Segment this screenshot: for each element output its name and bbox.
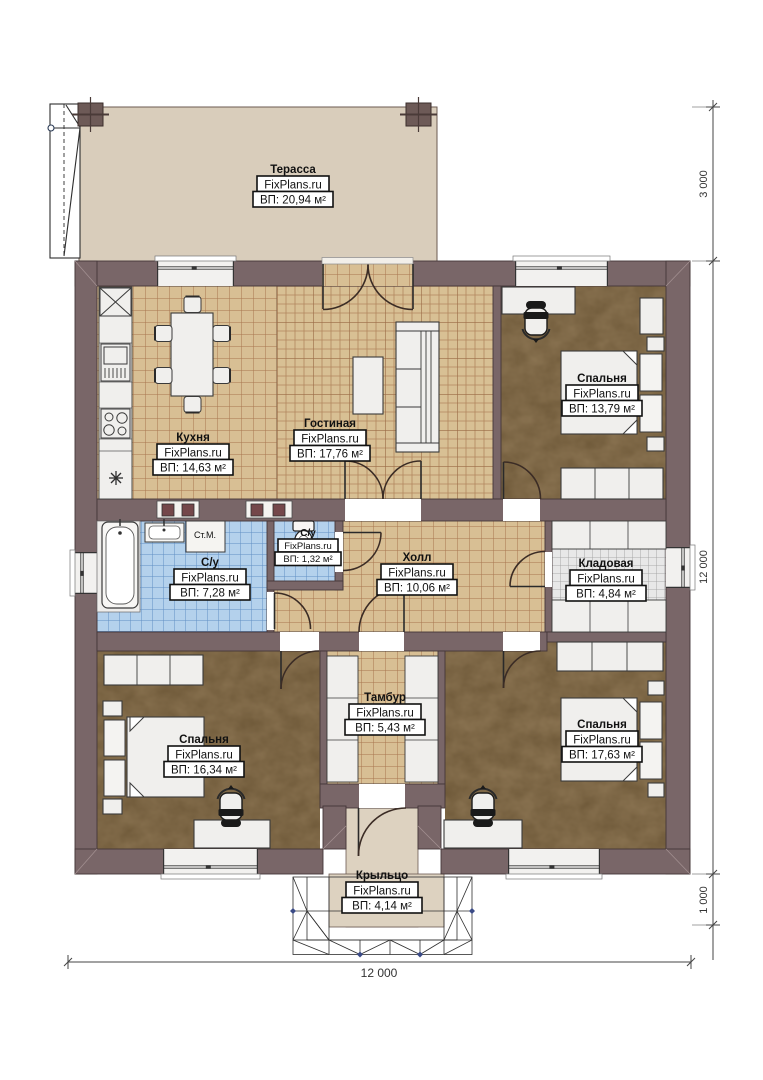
svg-text:Холл: Холл bbox=[403, 552, 432, 564]
svg-text:ВП: 16,34 м²: ВП: 16,34 м² bbox=[171, 765, 237, 777]
svg-text:Спальня: Спальня bbox=[577, 719, 627, 731]
svg-text:FixPlans.ru: FixPlans.ru bbox=[577, 573, 635, 585]
svg-text:FixPlans.ru: FixPlans.ru bbox=[284, 541, 332, 552]
svg-text:С/у: С/у bbox=[300, 528, 316, 539]
svg-text:ВП: 4,14 м²: ВП: 4,14 м² bbox=[352, 901, 412, 913]
svg-text:ВП: 20,94 м²: ВП: 20,94 м² bbox=[260, 195, 326, 207]
svg-text:FixPlans.ru: FixPlans.ru bbox=[175, 749, 233, 761]
svg-text:FixPlans.ru: FixPlans.ru bbox=[573, 734, 631, 746]
svg-text:ВП: 10,06 м²: ВП: 10,06 м² bbox=[384, 583, 450, 595]
svg-text:ВП: 1,32 м²: ВП: 1,32 м² bbox=[283, 554, 332, 565]
svg-text:12 000: 12 000 bbox=[698, 550, 710, 584]
svg-text:FixPlans.ru: FixPlans.ru bbox=[301, 433, 359, 445]
svg-text:ВП: 4,84 м²: ВП: 4,84 м² bbox=[576, 589, 636, 601]
svg-text:3 000: 3 000 bbox=[698, 170, 710, 198]
svg-text:Терасса: Терасса bbox=[270, 164, 316, 176]
svg-text:FixPlans.ru: FixPlans.ru bbox=[573, 388, 631, 400]
svg-text:1 000: 1 000 bbox=[698, 886, 710, 914]
svg-text:Спальня: Спальня bbox=[179, 734, 229, 746]
svg-text:12 000: 12 000 bbox=[361, 966, 398, 980]
svg-text:ВП: 17,63 м²: ВП: 17,63 м² bbox=[569, 750, 635, 762]
svg-text:FixPlans.ru: FixPlans.ru bbox=[164, 447, 222, 459]
svg-text:Гостиная: Гостиная bbox=[304, 418, 356, 430]
svg-text:С/у: С/у bbox=[201, 557, 220, 569]
svg-text:ВП: 14,63 м²: ВП: 14,63 м² bbox=[160, 463, 226, 475]
svg-text:Кладовая: Кладовая bbox=[578, 558, 633, 570]
svg-text:Ст.М.: Ст.М. bbox=[194, 530, 216, 540]
svg-text:ВП: 5,43 м²: ВП: 5,43 м² bbox=[355, 723, 415, 735]
svg-text:Крыльцо: Крыльцо bbox=[356, 870, 408, 882]
svg-text:ВП: 13,79 м²: ВП: 13,79 м² bbox=[569, 404, 635, 416]
svg-text:Спальня: Спальня bbox=[577, 373, 627, 385]
svg-text:FixPlans.ru: FixPlans.ru bbox=[181, 572, 239, 584]
svg-text:ВП: 17,76 м²: ВП: 17,76 м² bbox=[297, 449, 363, 461]
svg-text:ВП: 7,28 м²: ВП: 7,28 м² bbox=[180, 588, 240, 600]
svg-text:Тамбур: Тамбур bbox=[364, 692, 406, 704]
svg-text:FixPlans.ru: FixPlans.ru bbox=[356, 707, 414, 719]
svg-text:FixPlans.ru: FixPlans.ru bbox=[353, 885, 411, 897]
svg-text:FixPlans.ru: FixPlans.ru bbox=[388, 567, 446, 579]
svg-text:FixPlans.ru: FixPlans.ru bbox=[264, 179, 322, 191]
svg-text:Кухня: Кухня bbox=[176, 432, 210, 444]
